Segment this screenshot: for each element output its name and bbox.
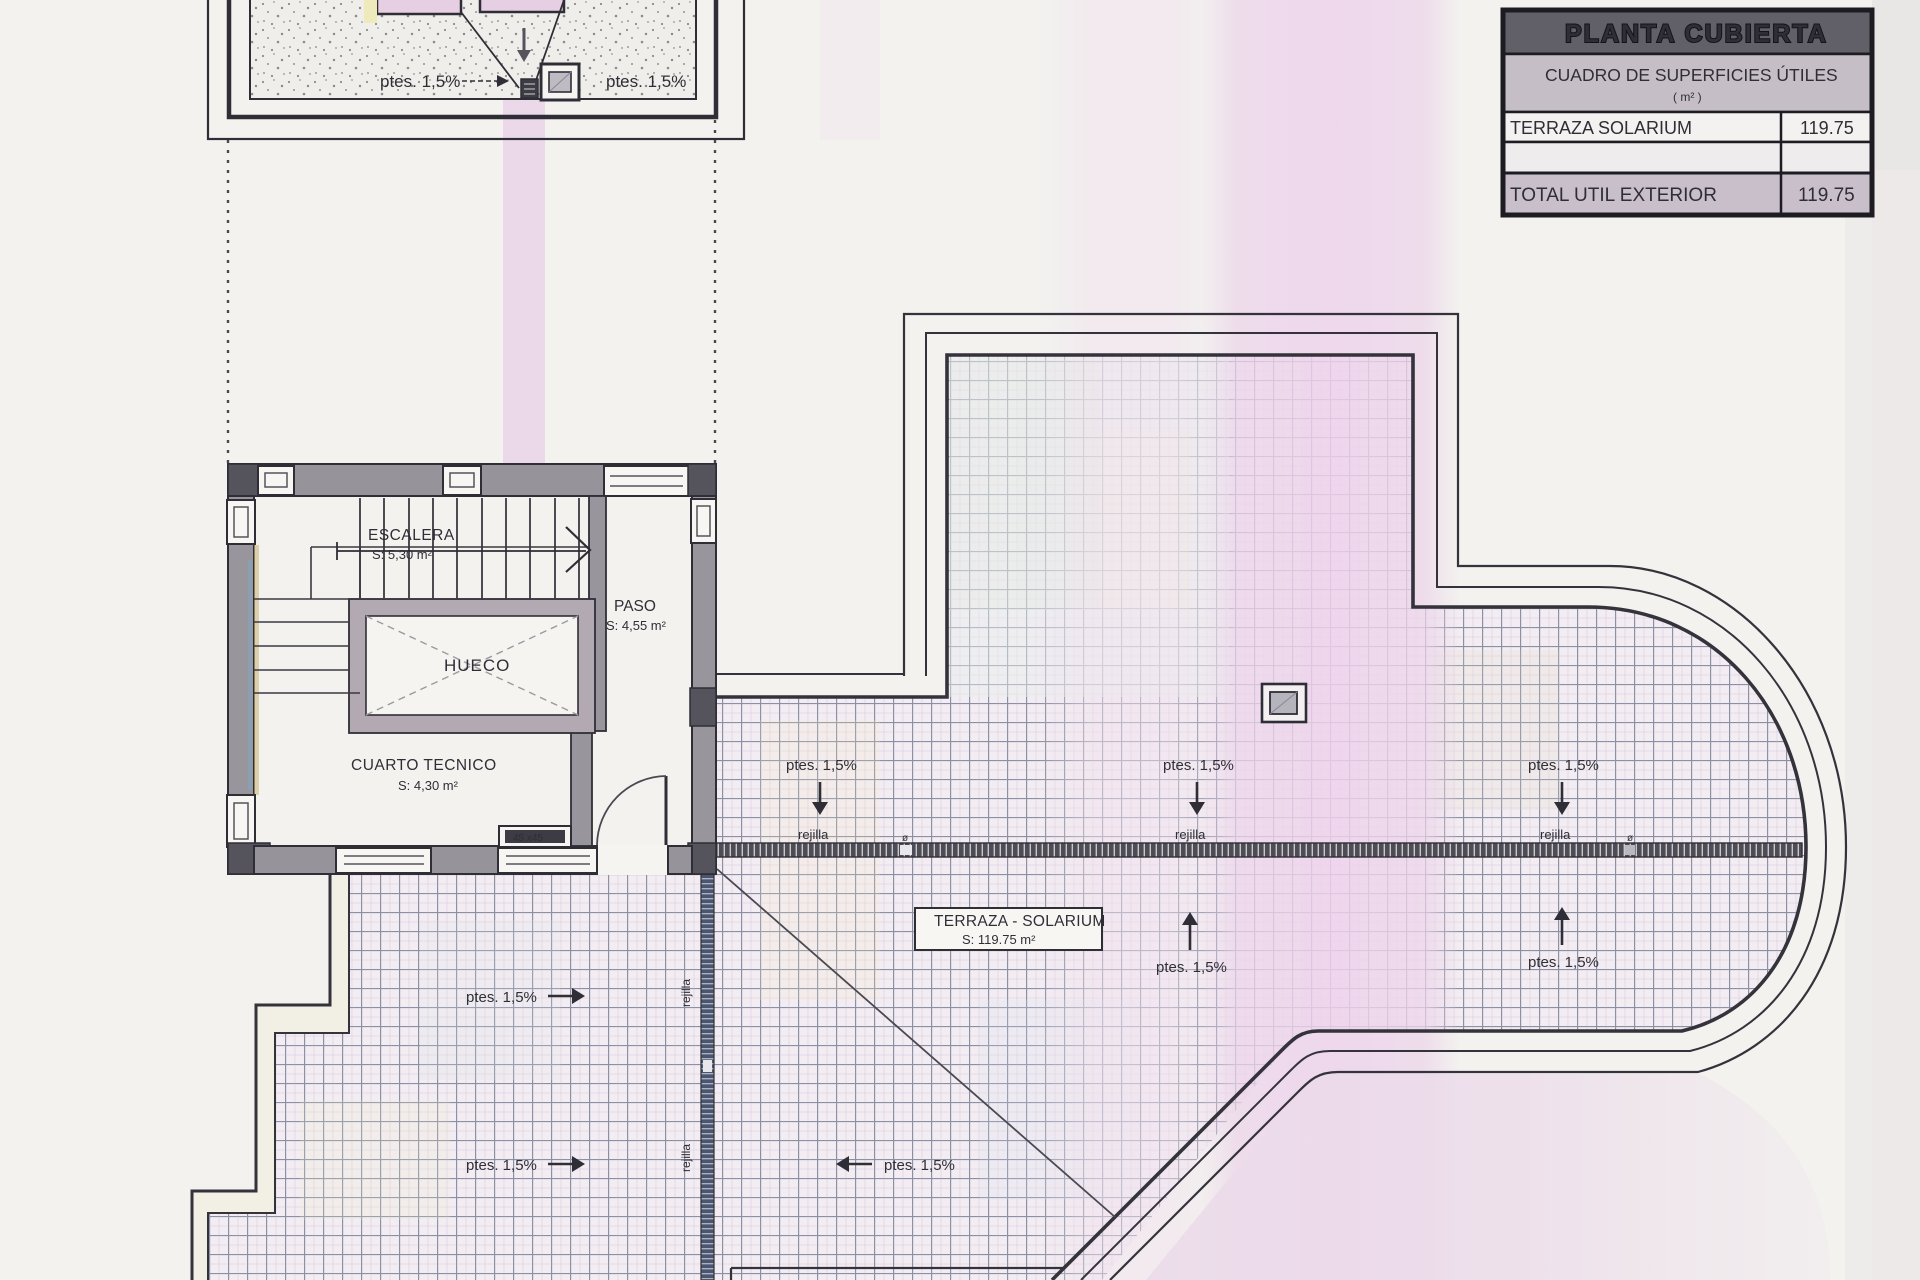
svg-text:S: 4,30 m²: S: 4,30 m²	[398, 778, 459, 793]
svg-text:S: 4,55 m²: S: 4,55 m²	[606, 618, 667, 633]
svg-text:PLANTA CUBIERTA: PLANTA CUBIERTA	[1565, 20, 1828, 48]
svg-text:S: 119.75 m²: S: 119.75 m²	[962, 932, 1036, 947]
svg-text:119.75: 119.75	[1800, 118, 1854, 138]
svg-text:rejilla: rejilla	[1175, 827, 1206, 842]
svg-text:( m² ): ( m² )	[1673, 90, 1702, 104]
svg-text:ptes. 1,5%: ptes. 1,5%	[1156, 959, 1227, 976]
svg-text:ptes. 1,5%: ptes. 1,5%	[380, 72, 460, 91]
svg-text:ptes. 1,5%: ptes. 1,5%	[1528, 757, 1599, 774]
svg-text:119.75: 119.75	[1798, 185, 1855, 206]
svg-text:HUECO: HUECO	[444, 656, 510, 675]
svg-text:CUADRO DE SUPERFICIES ÚTILES: CUADRO DE SUPERFICIES ÚTILES	[1545, 64, 1838, 85]
svg-text:rejilla: rejilla	[798, 827, 829, 842]
svg-text:TERRAZA - SOLARIUM: TERRAZA - SOLARIUM	[934, 913, 1106, 930]
svg-text:ø: ø	[1627, 833, 1633, 844]
svg-text:ptes. 1,5%: ptes. 1,5%	[884, 1157, 955, 1174]
svg-text:45 x45: 45 x45	[513, 833, 543, 844]
svg-text:rejilla: rejilla	[679, 979, 693, 1007]
svg-text:ptes. 1,5%: ptes. 1,5%	[466, 989, 537, 1006]
svg-text:TOTAL UTIL EXTERIOR: TOTAL UTIL EXTERIOR	[1510, 185, 1717, 206]
svg-text:ptes. 1,5%: ptes. 1,5%	[606, 72, 686, 91]
svg-text:rejilla: rejilla	[1540, 827, 1571, 842]
svg-text:ptes. 1,5%: ptes. 1,5%	[786, 757, 857, 774]
svg-text:PASO: PASO	[614, 598, 656, 615]
svg-text:ø: ø	[902, 833, 908, 844]
svg-text:ptes. 1,5%: ptes. 1,5%	[1163, 757, 1234, 774]
svg-text:S: 5,30 m²: S: 5,30 m²	[372, 547, 433, 562]
svg-text:ptes. 1,5%: ptes. 1,5%	[1528, 954, 1599, 971]
svg-text:rejilla: rejilla	[679, 1144, 693, 1172]
svg-text:ptes. 1,5%: ptes. 1,5%	[466, 1157, 537, 1174]
svg-text:CUARTO TECNICO: CUARTO TECNICO	[351, 757, 497, 774]
svg-text:TERRAZA SOLARIUM: TERRAZA SOLARIUM	[1510, 118, 1692, 138]
svg-text:ESCALERA: ESCALERA	[368, 527, 455, 544]
